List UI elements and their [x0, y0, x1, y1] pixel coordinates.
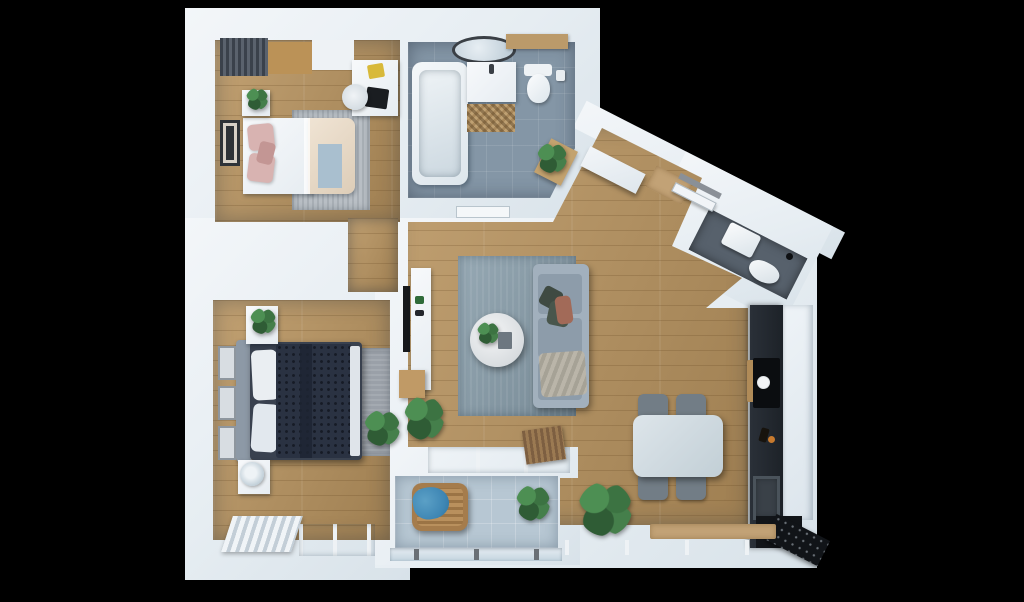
bedroom2-window [299, 524, 375, 556]
yellow-book [367, 63, 385, 80]
toilet-paper-holder [556, 70, 565, 81]
coffee-table-book [498, 332, 512, 349]
woven-mat [467, 104, 515, 132]
living-plant-left [404, 396, 444, 440]
bed2-duvet-quilted [276, 344, 352, 458]
table-lamp [240, 462, 264, 486]
bedroom2-plant-top [250, 308, 276, 334]
console-decor [415, 310, 424, 316]
bath-plant [537, 143, 567, 173]
wardrobe-wood-panel [268, 42, 312, 74]
console-decor [415, 296, 424, 304]
bedroom2-radiator [221, 516, 303, 552]
coffee-table-plant [477, 322, 499, 344]
toilet-bowl [527, 74, 550, 103]
bottom-window-right [565, 540, 750, 555]
bed2-duvet-fold [300, 344, 312, 458]
railing-clamp [474, 549, 479, 560]
desk-chair [342, 84, 368, 110]
bed2-pillow [251, 349, 280, 400]
bathtub-inner [419, 70, 461, 177]
magazine-stack [522, 425, 566, 464]
coffee-table [470, 313, 524, 367]
bed1-throw-blue [318, 144, 342, 188]
sofa-blanket [539, 350, 588, 397]
railing-clamp [534, 549, 539, 560]
dining-chair [638, 474, 668, 500]
bathroom-door [456, 206, 510, 218]
laptop [365, 87, 390, 110]
dining-chair [676, 474, 706, 500]
kitchen-cabinets-tall [783, 305, 813, 520]
kitchen-item-orange [768, 436, 775, 443]
bottom-doormat [650, 524, 776, 539]
wardrobe-white-panel [312, 40, 354, 70]
bedroom1-plant [246, 88, 268, 110]
wall-art-frame [220, 120, 240, 166]
railing-clamp [414, 549, 419, 560]
wc-faucet [786, 253, 793, 260]
wall-frame [218, 386, 236, 420]
wall-frame [218, 346, 236, 380]
wall-frame [218, 426, 236, 460]
cooktop-bowl [757, 376, 770, 389]
bed1-fold [304, 118, 310, 194]
wardrobe-slatted [220, 38, 268, 76]
living-plant-right [578, 482, 632, 536]
vanity-faucet [489, 64, 494, 74]
balcony-plant [516, 485, 550, 521]
dining-table [633, 415, 723, 477]
bathroom-shelf [506, 34, 568, 49]
floor-plan-stage [0, 0, 1024, 602]
tv [403, 286, 410, 352]
bedroom2-plant-floor [364, 410, 400, 446]
bed2-sheet-fold [350, 346, 360, 456]
wood-cabinet [399, 370, 425, 398]
niche-floor [348, 218, 398, 292]
